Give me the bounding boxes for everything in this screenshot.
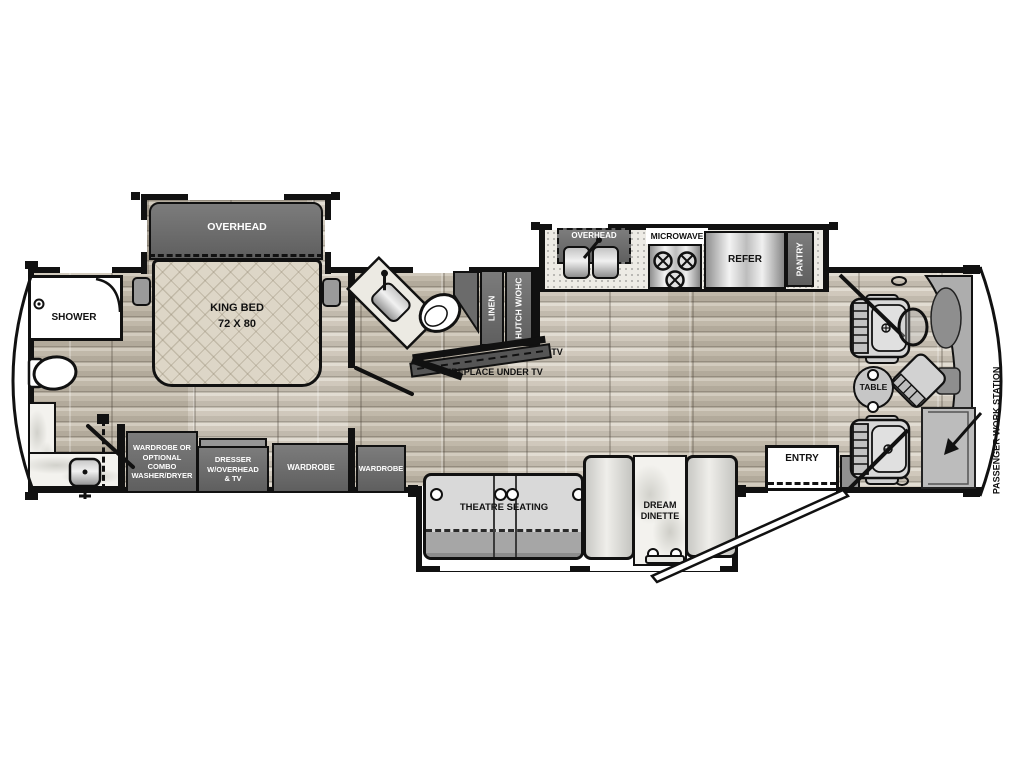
linen-closet: LINEN bbox=[480, 270, 504, 346]
table-label: TABLE bbox=[860, 382, 888, 392]
wardrobe-left: WARDROBE bbox=[272, 443, 350, 493]
dinette-label: DREAM DINETTE bbox=[633, 500, 687, 522]
living-slide-window-left bbox=[440, 566, 570, 571]
wall-top-right bbox=[824, 267, 982, 273]
wall-hutch-kitchen bbox=[532, 270, 540, 348]
shower-label: SHOWER bbox=[33, 312, 115, 324]
dinette-bench-right bbox=[685, 455, 738, 558]
entry-label: ENTRY bbox=[765, 453, 839, 465]
bed-foot-dashed-line bbox=[149, 254, 323, 257]
king-bed-size-label: 72 X 80 bbox=[177, 318, 297, 331]
entry-step-dash bbox=[768, 482, 836, 485]
hutch-label: HUTCH W/OHC bbox=[514, 277, 525, 338]
rv-floorplan: WARDROBE OR OPTIONAL COMBO WASHER/DRYER … bbox=[0, 0, 1024, 768]
wardrobe-right: WARDROBE bbox=[356, 445, 406, 493]
kitchen-overhead-label: OVERHEAD bbox=[557, 231, 631, 241]
refer-label: REFER bbox=[728, 254, 762, 266]
king-bed-label: KING BED bbox=[177, 302, 297, 315]
theatre-seating bbox=[423, 473, 584, 560]
cooktop bbox=[648, 244, 702, 289]
wardrobe-combo-label: WARDROBE OR OPTIONAL COMBO WASHER/DRYER bbox=[132, 443, 193, 481]
wardrobe-washer-combo: WARDROBE OR OPTIONAL COMBO WASHER/DRYER bbox=[126, 431, 198, 493]
wall-bath-divider bbox=[348, 270, 355, 368]
wall-bottom-right bbox=[836, 487, 982, 493]
window-shower bbox=[60, 267, 112, 273]
linen-label: LINEN bbox=[487, 295, 498, 321]
kitchen-sink-right bbox=[592, 246, 619, 279]
theatre-label: THEATRE SEATING bbox=[434, 502, 574, 513]
dinette-table-base bbox=[645, 555, 685, 564]
bedroom-slide-window bbox=[188, 194, 284, 200]
workstation-label: PASSENGER WORK STATION bbox=[992, 366, 1003, 494]
workstation-label-wrap: PASSENGER WORK STATION bbox=[937, 407, 1024, 453]
shower bbox=[28, 275, 123, 341]
table-cupholder-top bbox=[867, 369, 879, 381]
refrigerator: REFER bbox=[704, 231, 786, 289]
theatre-cupholder-1 bbox=[430, 488, 443, 501]
living-slide-window-right bbox=[590, 566, 720, 571]
dresser: DRESSER W/OVERHEAD & TV bbox=[197, 446, 269, 493]
rear-vanity-horizontal bbox=[28, 452, 120, 488]
fireplace-label: FIREPLACE UNDER TV bbox=[430, 367, 556, 378]
pantry: PANTRY bbox=[786, 231, 814, 287]
bedroom-overhead-label: OVERHEAD bbox=[177, 221, 297, 234]
wardrobe-left-label: WARDROBE bbox=[287, 463, 335, 473]
bedroom-slide-window-left bbox=[141, 220, 147, 252]
dinette-bench-left bbox=[583, 455, 635, 560]
kitchen-sink-left bbox=[563, 246, 590, 279]
theatre-footrest bbox=[426, 532, 584, 553]
tv-label: TV bbox=[545, 347, 569, 358]
theatre-base bbox=[426, 553, 584, 560]
bedroom-slide-window-right bbox=[325, 220, 331, 252]
entry-door-area bbox=[765, 445, 839, 491]
window-bath bbox=[413, 267, 469, 273]
wardrobe-right-label: WARDROBE bbox=[359, 464, 404, 473]
pantry-label: PANTRY bbox=[795, 242, 806, 276]
nightstand-left bbox=[132, 277, 151, 306]
bath-pocket-door bbox=[102, 420, 105, 490]
dresser-label: DRESSER W/OVERHEAD & TV bbox=[207, 455, 259, 483]
microwave-label: MICROWAVE bbox=[646, 231, 708, 241]
table-cupholder-bottom bbox=[867, 401, 879, 413]
nightstand-right bbox=[322, 278, 341, 307]
theatre-cupholder-3 bbox=[506, 488, 519, 501]
theatre-divider-1 bbox=[493, 476, 495, 560]
hutch-cabinet: HUTCH W/OHC bbox=[505, 270, 533, 346]
